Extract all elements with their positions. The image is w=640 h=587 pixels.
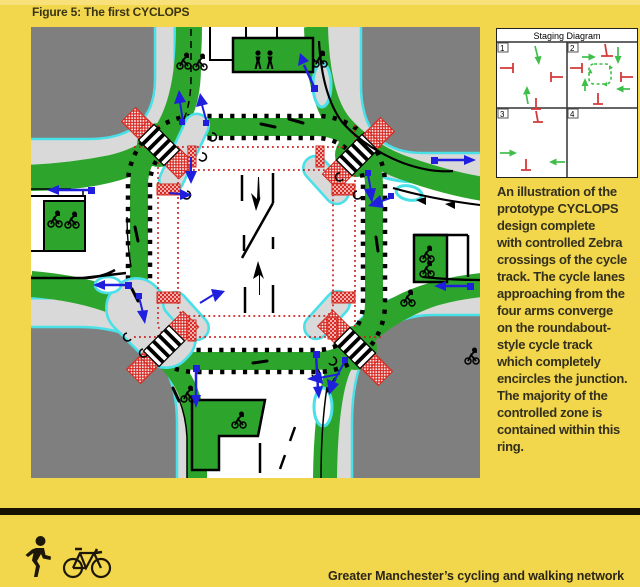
svg-text:3: 3 (500, 110, 505, 119)
svg-text:2: 2 (570, 44, 575, 53)
svg-text:1: 1 (500, 44, 505, 53)
svg-text:Staging Diagram: Staging Diagram (533, 31, 600, 41)
svg-text:4: 4 (570, 110, 575, 119)
